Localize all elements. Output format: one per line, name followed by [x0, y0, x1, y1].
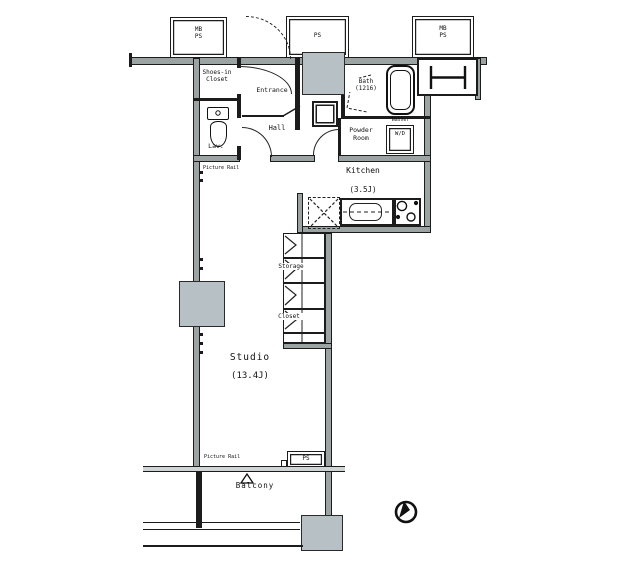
room-label-entrance: Entrance [249, 87, 295, 95]
shaft-top-right-line2: PS [439, 32, 446, 39]
storage-closet-column [283, 233, 325, 343]
hall-text: Hall [269, 124, 286, 132]
room-label-shoes-closet: Shoes-inCloset [195, 69, 239, 83]
room-label-storage: Storage [271, 263, 311, 270]
room-label-bath: Bath(1216) [348, 78, 384, 92]
entrance-step-line [242, 115, 284, 117]
powder-bottom-wall [338, 155, 431, 162]
storage-bottom-wall [283, 343, 332, 349]
balcony-fence [143, 522, 300, 530]
lav-right-wall [237, 146, 241, 160]
storage-divider-1 [283, 257, 325, 259]
wall-tick [199, 333, 203, 336]
studio-size-text: (13.4J) [231, 371, 269, 381]
window-sill-line [143, 466, 345, 472]
refrigerator-space-icon [308, 197, 340, 229]
column-box-top-right [417, 58, 478, 96]
wall-tick [199, 351, 203, 354]
shaft-top-right-line1: MB [439, 25, 446, 32]
shaft-gray-box-bottom [301, 515, 343, 551]
room-label-kitchen: Kitchen [333, 166, 393, 176]
hall-bottom-wall-mid [270, 155, 315, 162]
picture-rail-bottom-text: Picture Rail [204, 454, 240, 460]
shaft-label-top-left: MBPS [170, 26, 227, 40]
shaft-gray-box-top [302, 52, 345, 95]
duct-box-middle [312, 101, 338, 127]
studio-text: Studio [230, 352, 270, 363]
right-outer-wall-lower [325, 233, 332, 520]
room-label-lavatory: Lav. [202, 143, 230, 151]
wall-tick [199, 267, 203, 270]
wall-tick [199, 258, 203, 261]
shaft-top-left-line2: PS [195, 33, 202, 40]
balcony-lower-line [143, 545, 303, 547]
wall-end-cap-left [129, 53, 132, 67]
bath-line2: (1216) [355, 85, 377, 92]
shaft-gray-box-left [179, 281, 225, 327]
room-label-kitchen-size: (3.5J) [333, 185, 393, 194]
room-label-studio-size: (13.4J) [210, 371, 290, 382]
washer-dryer-label: W/D [387, 131, 413, 138]
balcony-left-post [196, 472, 202, 528]
toilet-tank-icon [207, 107, 229, 120]
mark-label-picture-rail-top: Picture Rail [203, 165, 243, 171]
powder-door-swing-icon [313, 129, 339, 155]
room-label-powder: PowderRoom [342, 127, 380, 143]
storage-divider-3 [283, 308, 325, 310]
kitchen-size-text: (3.5J) [349, 185, 376, 194]
shaft-bottom-text: PS [302, 455, 309, 462]
washer-dryer-text: W/D [395, 131, 405, 137]
balcony-text: Balcony [236, 481, 275, 490]
floor-plan: MBPS PS MBPS W/D [0, 0, 640, 569]
fixture-label-washer: Washer [386, 118, 415, 124]
shaft-top-middle-text: PS [314, 32, 321, 39]
shaft-label-top-middle: PS [286, 32, 349, 39]
powder-line2: Room [353, 134, 369, 142]
storage-divider-2 [283, 282, 325, 284]
kitchen-left-wall [297, 193, 303, 233]
hall-bottom-wall-left [193, 155, 240, 162]
closet-lav-divider [193, 98, 241, 101]
washer-dryer-box [386, 125, 414, 154]
entrance-right-wall [295, 58, 300, 130]
wall-tick [199, 179, 203, 182]
kitchen-sink-icon [349, 203, 382, 221]
wall-tick [199, 342, 203, 345]
room-label-closet: Closet [271, 313, 307, 320]
shaft-label-top-right: MBPS [412, 25, 474, 39]
room-label-hall: Hall [260, 124, 294, 132]
shaft-top-left-line1: MB [195, 26, 202, 33]
closet-text: Closet [278, 313, 300, 320]
bath-line1: Bath [359, 78, 373, 85]
room-label-studio: Studio [210, 352, 290, 363]
lavatory-text: Lav. [208, 142, 224, 150]
entrance-text: Entrance [256, 86, 287, 94]
bathtub-inner-icon [390, 70, 411, 110]
left-outer-wall [193, 58, 200, 468]
storage-divider-4 [283, 332, 325, 334]
entrance-door-swing-outer-icon [246, 16, 291, 59]
wall-tick [199, 171, 203, 174]
shoes-closet-line1: Shoes-in [203, 69, 232, 76]
storage-text: Storage [278, 263, 303, 270]
washer-text: Washer [392, 118, 409, 123]
stove-icon [394, 198, 421, 226]
kitchen-text: Kitchen [346, 166, 380, 175]
shoes-closet-line2: Closet [206, 76, 228, 83]
compass-icon [396, 501, 416, 522]
powder-line1: Powder [349, 126, 372, 134]
mark-label-picture-rail-bottom: Picture Rail [204, 454, 244, 460]
picture-rail-top-text: Picture Rail [203, 165, 239, 171]
shaft-label-bottom: PS [287, 455, 325, 462]
room-label-balcony: Balcony [218, 481, 292, 490]
